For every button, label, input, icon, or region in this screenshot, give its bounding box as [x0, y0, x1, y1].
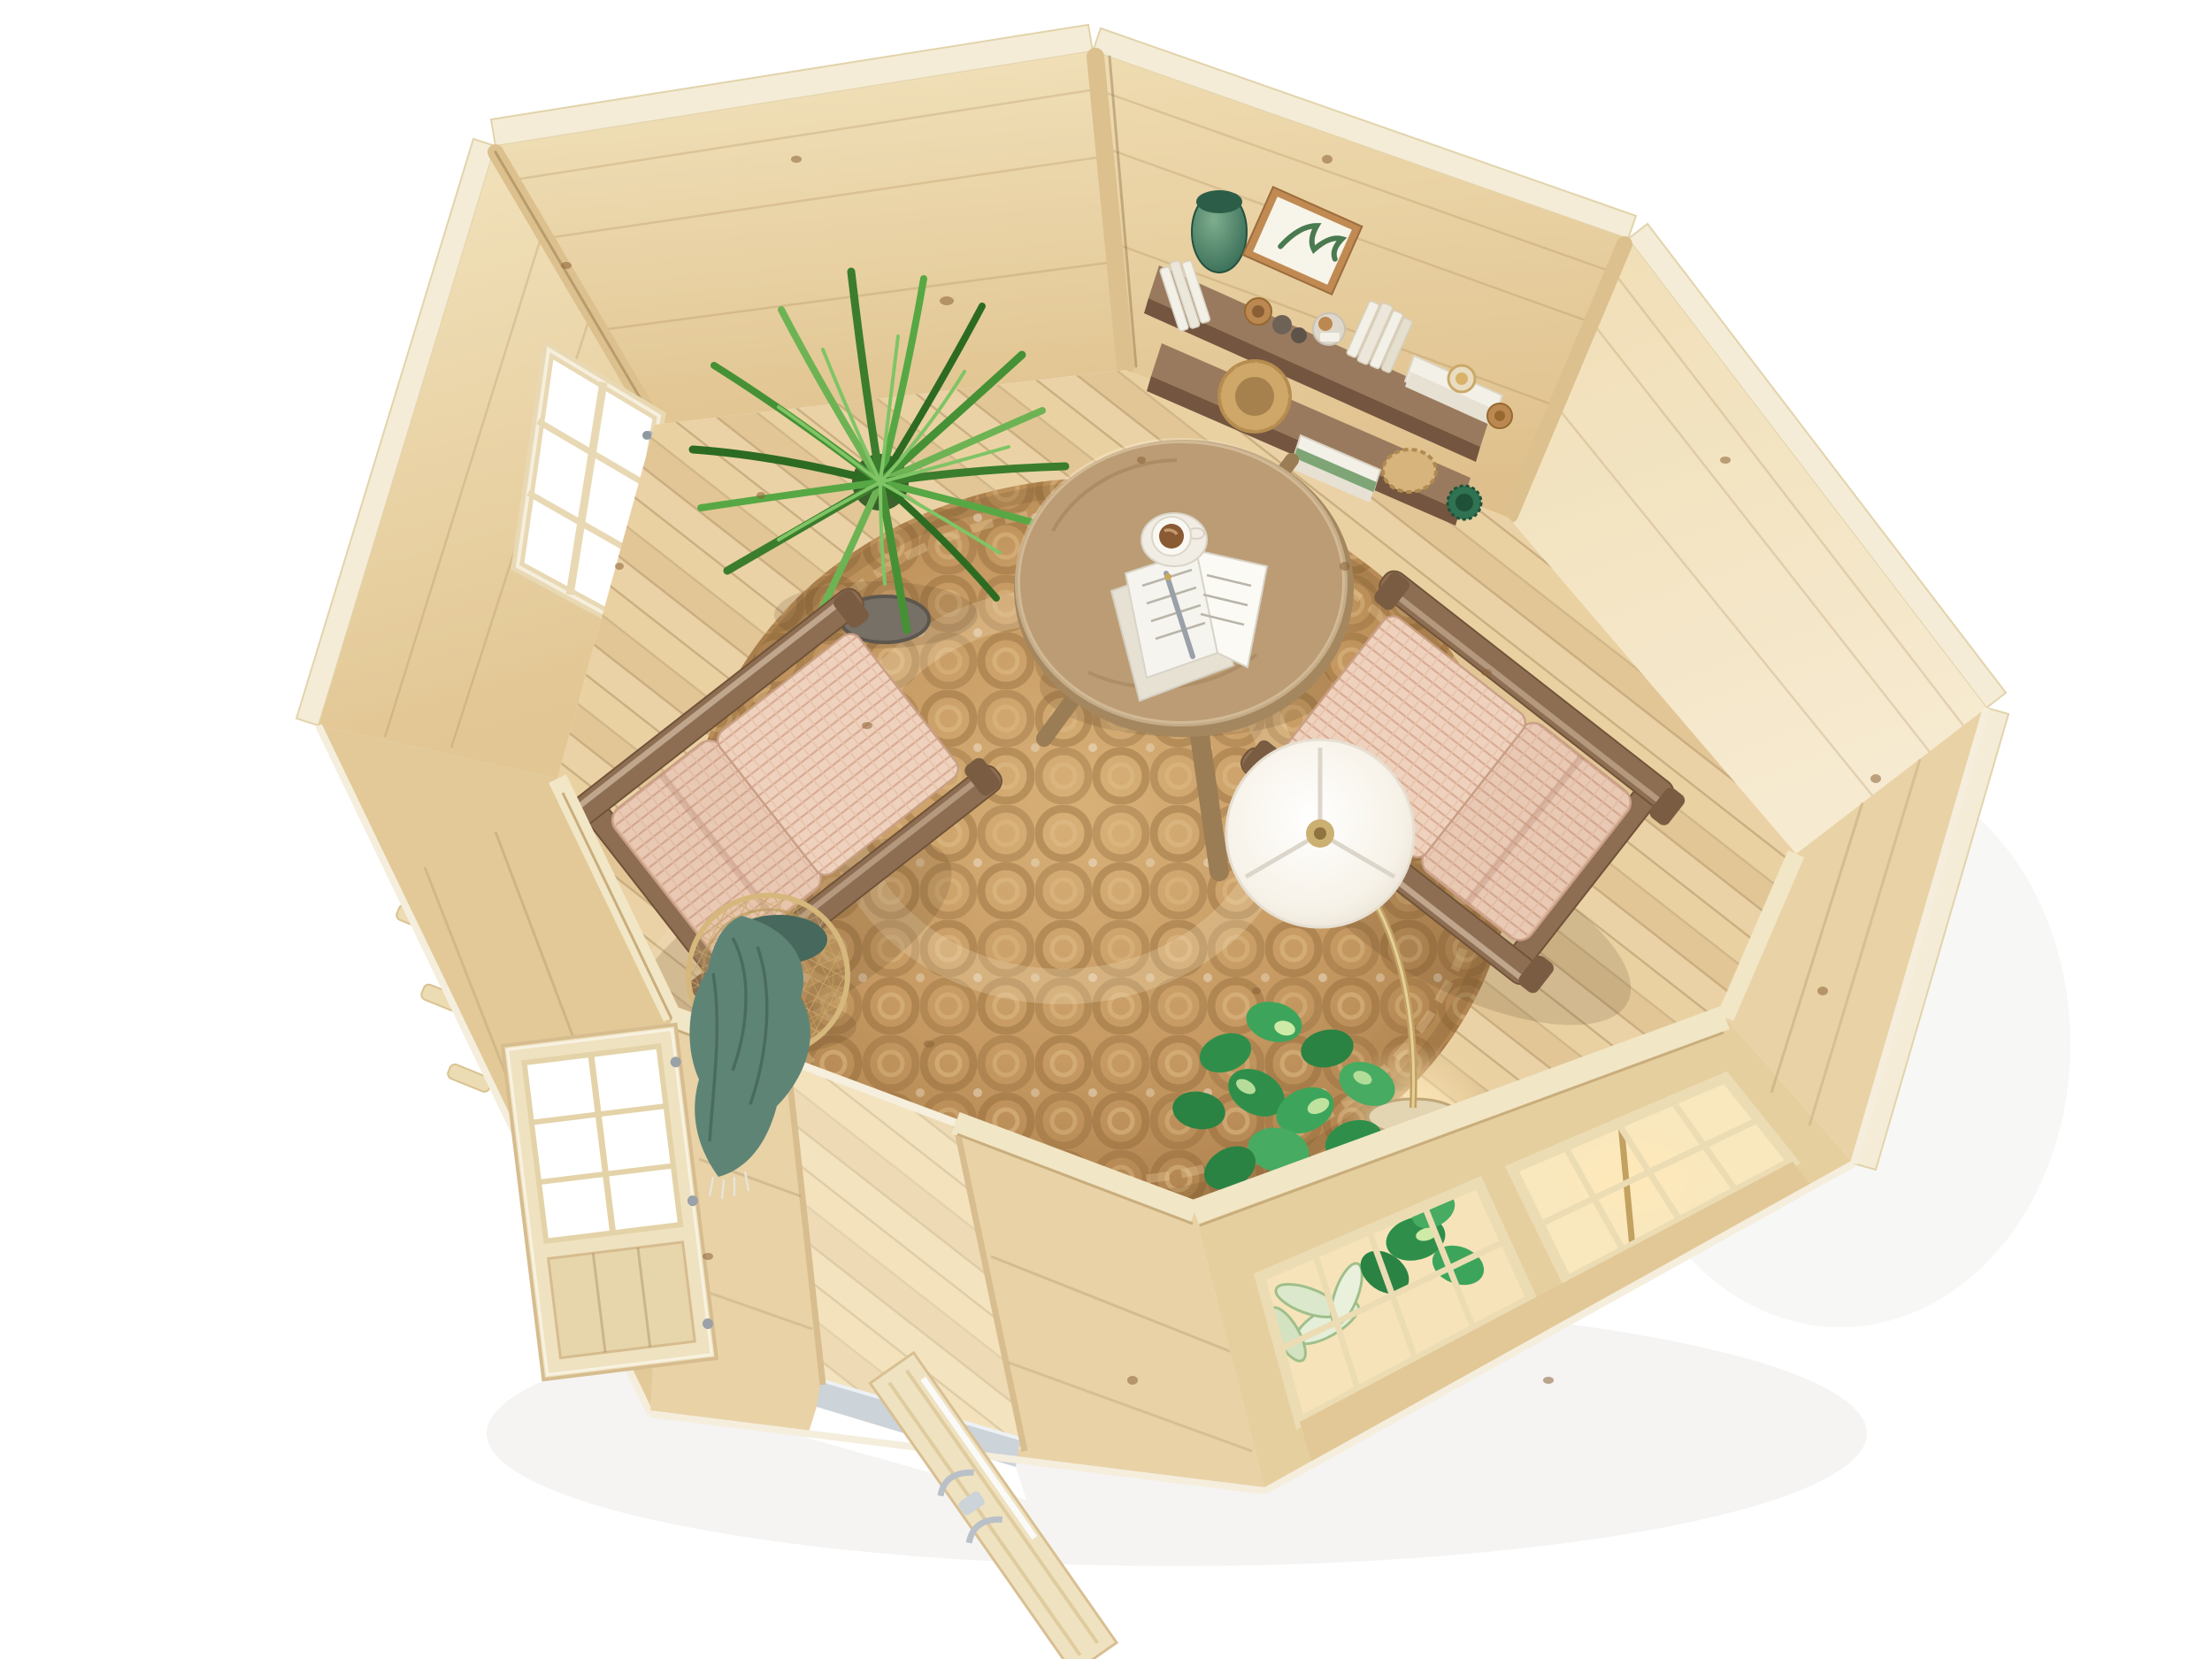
green-glass-cup	[1448, 486, 1481, 519]
green-vase	[1192, 190, 1247, 273]
open-book	[1125, 550, 1267, 678]
woven-plate	[1383, 449, 1436, 492]
hourglass	[1448, 365, 1475, 392]
cabin-render	[0, 0, 2212, 1659]
shelf-basket	[1219, 361, 1290, 432]
coffee-cup	[1141, 513, 1207, 566]
render-canvas	[0, 0, 2212, 1659]
